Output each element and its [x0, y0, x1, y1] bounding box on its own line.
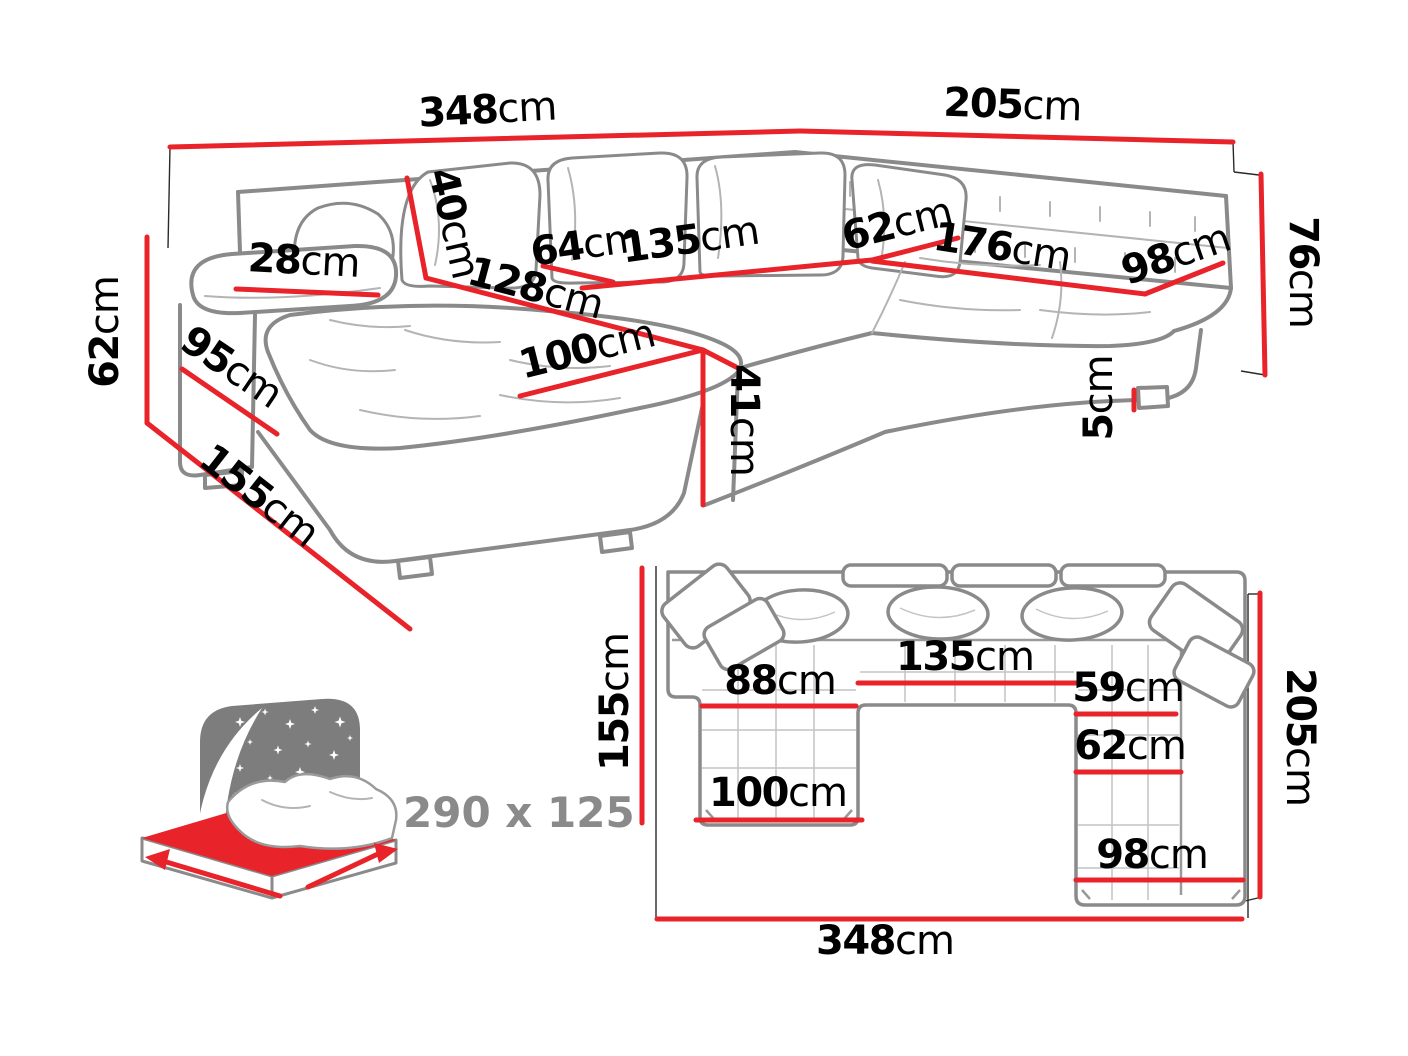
dim-label-41: 41cm: [721, 364, 767, 476]
dim-label-top-98: 98cm: [1096, 832, 1208, 878]
chaise-foot-left: [398, 557, 432, 578]
dim-line-76: [1261, 174, 1265, 375]
sofa-dimension-diagram: 348cm 205cm 40cm 28cm 64cm 135cm 128cm 6…: [0, 0, 1408, 1056]
dim-label-5: 5cm: [1076, 355, 1122, 440]
plan-backrest-3: [1061, 565, 1165, 586]
chaise-foot-right: [600, 532, 632, 552]
dim-label-top-348: 348cm: [816, 918, 954, 964]
dim-label-top-88: 88cm: [724, 658, 836, 704]
dim-label-76: 76cm: [1280, 216, 1326, 328]
dim-label-top-59: 59cm: [1072, 665, 1184, 711]
blanket: [227, 774, 396, 849]
dim-label-62-left: 62cm: [82, 276, 128, 388]
sleeping-size-label: 290 x 125: [403, 788, 635, 837]
dim-label-348: 348cm: [417, 83, 557, 136]
top-view: 155cm 205cm 348cm 88cm 135cm 59cm 62cm 1…: [592, 560, 1323, 964]
right-seat-front-edge: [872, 331, 1174, 346]
chaise-cushion: [266, 306, 741, 449]
dim-line-205: [800, 131, 1233, 142]
dim-label-top-155: 155cm: [592, 633, 638, 771]
middle-seat-front-edge: [740, 333, 872, 368]
dim-label-top-62: 62cm: [1074, 723, 1186, 769]
right-seat-end-cap: [1174, 288, 1231, 331]
plan-backrest-2: [952, 565, 1056, 586]
dim-label-top-205: 205cm: [1277, 668, 1323, 806]
dim-label-top-135: 135cm: [896, 634, 1034, 680]
plan-backrest-1: [843, 565, 947, 586]
corner-seat-seam: [872, 262, 905, 333]
dim-label-205: 205cm: [943, 80, 1082, 131]
dim-line-348: [170, 131, 800, 147]
dim-label-28: 28cm: [247, 235, 361, 287]
right-foot: [1138, 387, 1168, 408]
dim-label-top-100: 100cm: [709, 770, 847, 816]
perspective-view: 348cm 205cm 40cm 28cm 64cm 135cm 128cm 6…: [82, 80, 1326, 629]
backrest-left-end: [238, 192, 240, 252]
sleeping-function-icon: 290 x 125: [142, 699, 635, 898]
